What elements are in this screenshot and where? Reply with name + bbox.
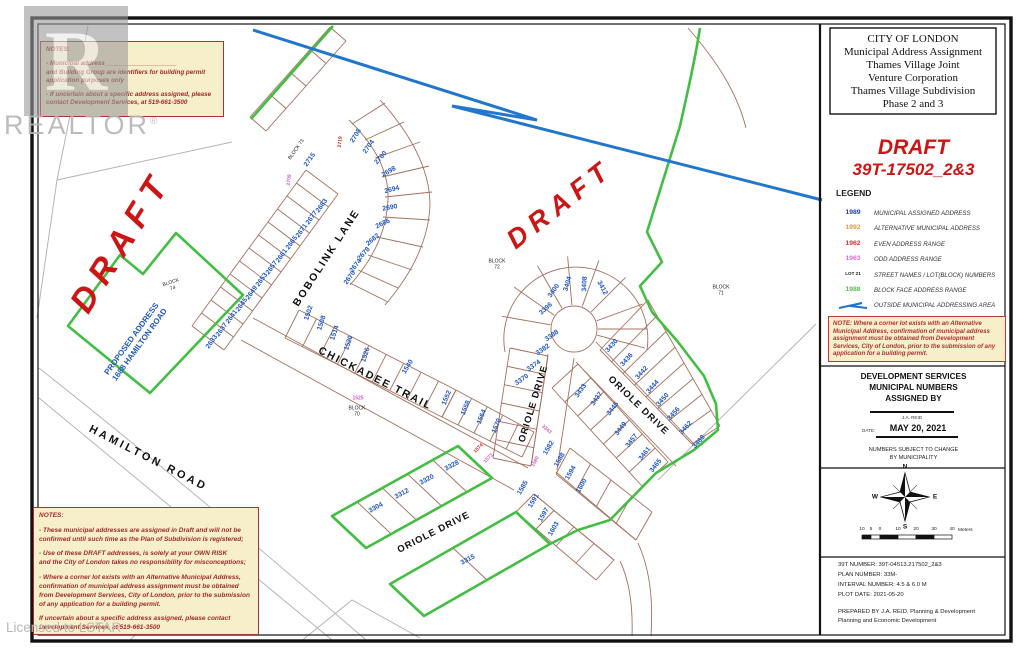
title-line: Thames Village Subdivision	[830, 85, 996, 98]
scale-tick: 0	[879, 527, 882, 532]
compass-north-label: N	[903, 464, 908, 471]
scale-unit: Meters	[958, 528, 973, 533]
title-block: CITY OF LONDONMunicipal Address Assignme…	[830, 33, 996, 111]
panel-draft: DRAFT 39T-17502_2&3	[822, 136, 1005, 180]
legend-sample: 1962	[836, 240, 870, 247]
prepared-line: Planning and Economic Development	[838, 617, 975, 626]
legend-sample: 1989	[836, 209, 870, 216]
subject-to-change: NUMBERS SUBJECT TO CHANGE BY MUNICIPALIT…	[822, 446, 1005, 463]
prepared-line: PREPARED BY J.A. REID, Planning & Develo…	[838, 608, 975, 617]
title-line: Phase 2 and 3	[830, 98, 996, 111]
notes-bottom-lines: - These municipal addresses are assigned…	[39, 521, 253, 633]
title-line: CITY OF LONDON	[830, 33, 996, 46]
outside-area-zigzag-line	[253, 30, 822, 200]
scale-tick: 20	[913, 527, 918, 532]
legend-label: ODD ADDRESS RANGE	[874, 256, 942, 263]
compass-south-label: S	[903, 524, 907, 531]
legend-row: 1992ALTERNATIVE MUNICIPAL ADDRESS	[832, 224, 1004, 236]
draft-title: DRAFT	[822, 136, 1005, 160]
plat-map-sheet: 2715271927092683267726712665266126572653…	[0, 0, 1024, 662]
assigned-line: ASSIGNED BY	[822, 393, 1005, 404]
panel-note: NOTE: Where a corner lot exists with an …	[828, 316, 1006, 362]
address-label: 3408	[581, 276, 589, 291]
legend-row: 1988BLOCK FACE ADDRESS RANGE	[832, 286, 1004, 298]
realtor-logo: R	[24, 6, 128, 116]
block-label: BLOCK 71	[713, 286, 730, 297]
note-line: from Development Services, City of Londo…	[39, 592, 253, 601]
address-label: 1525	[352, 396, 363, 401]
block-label: BLOCK 70	[349, 407, 366, 418]
date-label: DATE:	[862, 428, 875, 433]
scale-tick: 10	[895, 527, 900, 532]
registered-mark: ®	[150, 116, 160, 127]
scale-tick: 30	[931, 527, 936, 532]
info-line: PLAN NUMBER: 33M-	[838, 570, 942, 580]
assigned-line: MUNICIPAL NUMBERS	[822, 382, 1005, 393]
title-line: Thames Village Joint	[830, 59, 996, 72]
note-line: - Use of these DRAFT addresses, is solel…	[39, 550, 253, 559]
notes-box-bottom: NOTES: - These municipal addresses are a…	[33, 507, 259, 635]
legend-label: EVEN ADDRESS RANGE	[874, 241, 945, 248]
compass-east-label: E	[933, 494, 937, 501]
notes-bottom-title: NOTES:	[39, 512, 253, 521]
generated-lot-lines	[192, 27, 720, 616]
license-text: Licensed to LSTAR	[6, 620, 121, 635]
legend-sample: 1992	[836, 224, 870, 231]
info-line: INTERVAL NUMBER: 4.5 & 6.0 M	[838, 580, 942, 590]
subject-line1: NUMBERS SUBJECT TO CHANGE	[822, 446, 1005, 454]
info-line: 39T NUMBER: 39T-04513.217502_2&3	[838, 560, 942, 570]
date-value: MAY 20, 2021	[876, 423, 960, 433]
realtor-logo-letter: R	[45, 18, 107, 104]
note-line: confirmed until such time as the Plan of…	[39, 536, 253, 545]
assigned-by-block: DEVELOPMENT SERVICESMUNICIPAL NUMBERSASS…	[822, 371, 1005, 404]
signature-name: J.A. REID	[870, 415, 954, 420]
scale-tick: 40	[949, 527, 954, 532]
title-line: Venture Corporation	[830, 72, 996, 85]
legend-row: 1963ODD ADDRESS RANGE	[832, 255, 1004, 267]
address-label: 2719	[338, 136, 344, 148]
note-line: - Where a corner lot exists with an Alte…	[39, 574, 253, 583]
title-line: Municipal Address Assignment	[830, 46, 996, 59]
cul-de-sac-bulb	[551, 306, 597, 352]
plan-info-block: 39T NUMBER: 39T-04513.217502_2&3PLAN NUM…	[838, 560, 942, 600]
compass-rose	[881, 473, 929, 521]
legend-label: STREET NAMES / LOT(BLOCK) NUMBERS	[874, 272, 995, 279]
legend-sample: 1988	[836, 286, 870, 293]
block-label: BLOCK 72	[489, 260, 506, 271]
note-line: and the City of London takes no responsi…	[39, 559, 253, 568]
legend-zigzag-icon	[836, 301, 870, 312]
assigned-line: DEVELOPMENT SERVICES	[822, 371, 1005, 382]
legend-row: LOT 21STREET NAMES / LOT(BLOCK) NUMBERS	[832, 271, 1004, 283]
subject-line2: BY MUNICIPALITY	[822, 454, 1005, 462]
draft-number: 39T-17502_2&3	[822, 160, 1005, 180]
realtor-wordmark: REALTOR®	[4, 110, 160, 141]
address-label: 2709	[287, 174, 293, 186]
note-line: - These municipal addresses are assigned…	[39, 527, 253, 536]
prepared-by-block: PREPARED BY J.A. REID, Planning & Develo…	[838, 608, 975, 627]
legend-sample: 1963	[836, 255, 870, 262]
legend-row: 1962EVEN ADDRESS RANGE	[832, 240, 1004, 252]
realtor-text: REALTOR	[4, 110, 150, 140]
legend-label: ALTERNATIVE MUNICIPAL ADDRESS	[874, 225, 980, 232]
scale-tick: 10	[859, 527, 864, 532]
note-line: of any application for a building permit…	[39, 601, 253, 610]
legend-sample: LOT 21	[836, 271, 870, 276]
compass-west-label: W	[872, 494, 878, 501]
scale-bar	[862, 535, 952, 539]
legend-label: MUNICIPAL ASSIGNED ADDRESS	[874, 210, 971, 217]
note-line: confirmation of municipal address assign…	[39, 583, 253, 592]
legend-label: BLOCK FACE ADDRESS RANGE	[874, 287, 966, 294]
scale-tick: 5	[870, 527, 873, 532]
info-line: PLOT DATE: 2021-05-20	[838, 590, 942, 600]
legend-row: 1989MUNICIPAL ASSIGNED ADDRESS	[832, 209, 1004, 221]
legend-row: OUTSIDE MUNICIPAL ADDRESSING AREA	[832, 301, 1004, 313]
legend-label: OUTSIDE MUNICIPAL ADDRESSING AREA	[874, 302, 995, 309]
legend-heading: LEGEND	[836, 188, 871, 198]
